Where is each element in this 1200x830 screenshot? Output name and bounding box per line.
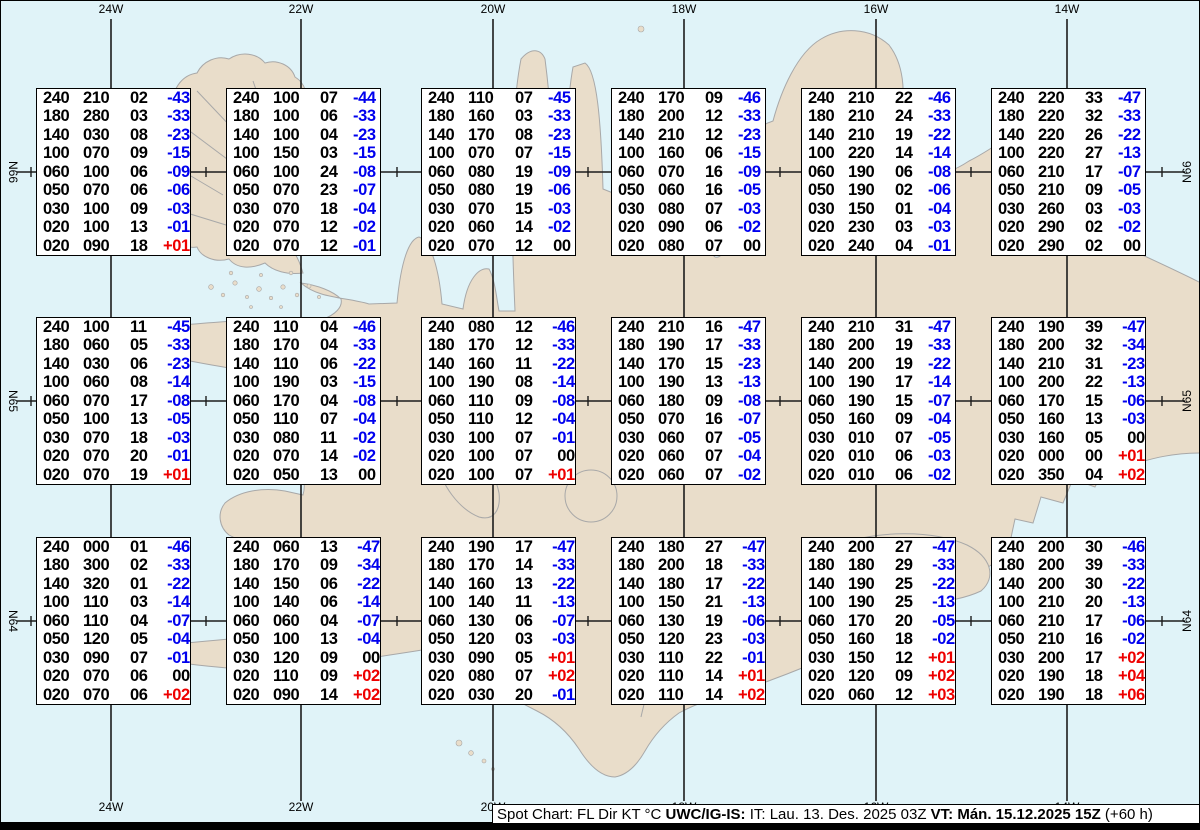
spot-row: 06021017-06 [992, 612, 1151, 630]
kt-value: 02 [895, 182, 928, 199]
dir-value: 110 [468, 393, 515, 410]
spot-row: 0202900200 [992, 237, 1147, 255]
dir-value: 190 [848, 594, 895, 611]
temp-value: -47 [1118, 319, 1145, 336]
spot-row: 18020039-33 [992, 556, 1151, 574]
fl-value: 100 [998, 374, 1038, 391]
fl-value: 050 [998, 411, 1038, 428]
fl-value: 020 [998, 219, 1038, 236]
temp-value: -07 [548, 613, 575, 630]
kt-value: 06 [130, 668, 163, 685]
fl-value: 030 [998, 201, 1038, 218]
temp-value: -22 [548, 576, 575, 593]
dir-value: 070 [83, 145, 130, 162]
kt-value: 19 [515, 182, 548, 199]
temp-value: -47 [928, 319, 951, 336]
temp-value: -33 [1118, 108, 1141, 125]
fl-value: 050 [43, 411, 83, 428]
dir-value: 190 [1038, 687, 1085, 704]
fl-value: 180 [428, 337, 468, 354]
spot-row: 05008019-06 [422, 181, 577, 199]
spot-row: 03010007-01 [422, 429, 581, 447]
temp-value: -33 [548, 108, 571, 125]
temp-value: -22 [1118, 127, 1141, 144]
dir-value: 100 [83, 219, 130, 236]
spot-row: 05010013-04 [227, 630, 386, 648]
temp-value: -33 [928, 337, 951, 354]
temp-value: -05 [928, 613, 955, 630]
kt-value: 21 [705, 594, 738, 611]
kt-value: 07 [515, 145, 548, 162]
fl-value: 180 [998, 108, 1038, 125]
fl-value: 030 [43, 650, 83, 667]
fl-value: 030 [998, 650, 1038, 667]
dir-value: 120 [468, 631, 515, 648]
temp-value: -22 [928, 356, 951, 373]
temp-value: -02 [738, 467, 761, 484]
temp-value: -33 [738, 337, 761, 354]
fl-value: 020 [998, 687, 1038, 704]
temp-value: -07 [163, 613, 190, 630]
temp-value: +02 [738, 687, 765, 704]
temp-value: -08 [353, 393, 376, 410]
spot-row: 06007017-08 [37, 392, 196, 410]
temp-value: -04 [353, 201, 376, 218]
kt-value: 22 [705, 650, 738, 667]
dir-value: 110 [658, 668, 705, 685]
kt-value: 13 [130, 411, 163, 428]
temp-value: -47 [738, 319, 761, 336]
kt-value: 25 [895, 576, 928, 593]
fl-value: 240 [808, 319, 848, 336]
temp-value: 00 [353, 650, 380, 667]
kt-value: 11 [130, 319, 163, 336]
spot-row: 24021031-47 [802, 318, 957, 336]
temp-value: -13 [738, 594, 765, 611]
kt-value: 27 [705, 539, 738, 556]
spot-row: 05021009-05 [992, 181, 1147, 199]
temp-value: -01 [163, 650, 190, 667]
fl-value: 050 [428, 631, 468, 648]
temp-value: -02 [353, 219, 376, 236]
temp-value: -22 [738, 576, 765, 593]
fl-value: 100 [998, 145, 1038, 162]
temp-value: +02 [1118, 467, 1145, 484]
fl-value: 020 [428, 238, 468, 255]
dir-value: 100 [273, 127, 320, 144]
temp-value: -44 [353, 90, 376, 107]
temp-value: -14 [163, 594, 190, 611]
temp-value: -45 [548, 90, 571, 107]
fl-value: 180 [808, 557, 848, 574]
kt-value: 13 [1085, 411, 1118, 428]
dir-value: 160 [658, 145, 705, 162]
temp-value: -33 [163, 108, 190, 125]
kt-value: 18 [705, 557, 738, 574]
spot-row: 14015006-22 [227, 575, 386, 593]
dir-value: 070 [468, 238, 515, 255]
dir-value: 200 [658, 108, 705, 125]
temp-value: +01 [548, 467, 575, 484]
fl-value: 180 [43, 557, 83, 574]
spot-row: 05012023-03 [612, 630, 771, 648]
lon-label-top: 18W [672, 3, 697, 15]
kt-value: 17 [1085, 164, 1118, 181]
temp-value: -33 [738, 557, 765, 574]
spot-row: 05011007-04 [227, 410, 382, 428]
spot-row: 24010011-45 [37, 318, 196, 336]
fl-value: 020 [808, 467, 848, 484]
fl-value: 140 [43, 576, 83, 593]
spot-row: 14016011-22 [422, 355, 581, 373]
kt-value: 19 [895, 356, 928, 373]
temp-value: -02 [928, 467, 951, 484]
kt-value: 13 [130, 219, 163, 236]
spot-row: 14019025-22 [802, 575, 961, 593]
dir-value: 100 [273, 631, 320, 648]
fl-value: 020 [808, 219, 848, 236]
spot-row: 05007016-07 [612, 410, 767, 428]
temp-value: +04 [1118, 668, 1145, 685]
dir-value: 200 [1038, 539, 1085, 556]
spot-row: 24006013-47 [227, 538, 386, 556]
spot-row: 10019013-13 [612, 373, 767, 391]
dir-value: 160 [468, 576, 515, 593]
spot-row: 0200701200 [422, 237, 577, 255]
spot-row: 24021022-46 [802, 89, 957, 107]
fl-value: 180 [428, 108, 468, 125]
kt-value: 01 [130, 576, 163, 593]
temp-value: 00 [1118, 430, 1145, 447]
dir-value: 110 [273, 668, 320, 685]
fl-value: 020 [43, 467, 83, 484]
kt-value: 07 [320, 411, 353, 428]
fl-value: 020 [808, 448, 848, 465]
dir-value: 160 [1038, 430, 1085, 447]
temp-value: -47 [738, 539, 765, 556]
spot-data-box: 24021031-4718020019-3314020019-221001901… [801, 317, 956, 485]
spot-row: 18018029-33 [802, 556, 961, 574]
legend-text-segment: Spot Chart: FL Dir KT °C [497, 807, 666, 822]
lon-label-top: 16W [864, 3, 889, 15]
temp-value: -08 [928, 164, 951, 181]
fl-value: 100 [428, 145, 468, 162]
kt-value: 05 [515, 650, 548, 667]
temp-value: -03 [928, 219, 951, 236]
fl-value: 240 [43, 539, 83, 556]
spot-row: 05019002-06 [802, 181, 957, 199]
fl-value: 030 [808, 650, 848, 667]
spot-row: 14032001-22 [37, 575, 196, 593]
kt-value: 12 [705, 108, 738, 125]
fl-value: 240 [428, 539, 468, 556]
spot-row: 06013019-06 [612, 612, 771, 630]
kt-value: 19 [130, 467, 163, 484]
dir-value: 050 [273, 467, 320, 484]
spot-row: 02029002-02 [992, 218, 1147, 236]
spot-row: 02023003-03 [802, 218, 957, 236]
fl-value: 240 [998, 539, 1038, 556]
dir-value: 070 [83, 393, 130, 410]
fl-value: 030 [43, 430, 83, 447]
dir-value: 060 [658, 182, 705, 199]
dir-value: 200 [848, 337, 895, 354]
fl-value: 020 [233, 238, 273, 255]
temp-value: -04 [928, 201, 951, 218]
kt-value: 13 [320, 467, 353, 484]
kt-value: 03 [515, 631, 548, 648]
temp-value: -33 [1118, 557, 1145, 574]
dir-value: 140 [468, 594, 515, 611]
fl-value: 240 [808, 539, 848, 556]
kt-value: 14 [515, 557, 548, 574]
temp-value: -03 [738, 631, 765, 648]
dir-value: 110 [658, 650, 705, 667]
spot-row: 05016009-04 [802, 410, 957, 428]
temp-value: -04 [928, 411, 951, 428]
temp-value: -09 [548, 164, 571, 181]
fl-value: 020 [233, 448, 273, 465]
fl-value: 030 [233, 201, 273, 218]
kt-value: 04 [320, 127, 353, 144]
temp-value: +03 [928, 687, 955, 704]
temp-value: +01 [163, 238, 190, 255]
fl-value: 020 [428, 467, 468, 484]
kt-value: 07 [895, 430, 928, 447]
dir-value: 070 [83, 467, 130, 484]
dir-value: 060 [468, 219, 515, 236]
spot-row: 10006008-14 [37, 373, 196, 391]
temp-value: -08 [738, 393, 761, 410]
kt-value: 18 [130, 238, 163, 255]
spot-row: 02000000+01 [992, 447, 1151, 465]
kt-value: 11 [515, 594, 548, 611]
dir-value: 190 [1038, 668, 1085, 685]
kt-value: 17 [895, 374, 928, 391]
dir-value: 210 [1038, 613, 1085, 630]
spot-row: 02010007+01 [422, 466, 581, 484]
spot-row: 10019008-14 [422, 373, 581, 391]
kt-value: 06 [320, 594, 353, 611]
spot-row: 02024004-01 [802, 237, 957, 255]
fl-value: 020 [808, 668, 848, 685]
spot-data-box: 24021002-4318028003-3314003008-231000700… [36, 88, 191, 256]
kt-value: 16 [705, 182, 738, 199]
kt-value: 12 [320, 238, 353, 255]
spot-data-box: 24021022-4618021024-3314021019-221002201… [801, 88, 956, 256]
fl-value: 140 [998, 576, 1038, 593]
fl-value: 180 [428, 557, 468, 574]
spot-row: 10022027-13 [992, 144, 1147, 162]
spot-row: 10019003-15 [227, 373, 382, 391]
dir-value: 090 [658, 219, 705, 236]
kt-value: 20 [895, 613, 928, 630]
spot-row: 05012003-03 [422, 630, 581, 648]
spot-row: 10015003-15 [227, 144, 382, 162]
kt-value: 09 [705, 393, 738, 410]
fl-value: 020 [618, 219, 658, 236]
fl-value: 020 [618, 238, 658, 255]
dir-value: 200 [1038, 337, 1085, 354]
spot-data-box: 24010007-4418010006-3314010004-231001500… [226, 88, 381, 256]
lat-label-right: N64 [1181, 610, 1193, 632]
fl-value: 060 [808, 164, 848, 181]
temp-value: +02 [163, 687, 190, 704]
kt-value: 05 [1085, 430, 1118, 447]
temp-value: -23 [1118, 356, 1145, 373]
dir-value: 190 [848, 164, 895, 181]
dir-value: 000 [1038, 448, 1085, 465]
kt-value: 14 [705, 668, 738, 685]
lat-label-left: N66 [7, 161, 19, 183]
fl-value: 100 [808, 594, 848, 611]
kt-value: 03 [320, 374, 353, 391]
temp-value: 00 [738, 238, 761, 255]
fl-value: 100 [808, 374, 848, 391]
kt-value: 08 [515, 374, 548, 391]
temp-value: -13 [548, 594, 575, 611]
dir-value: 180 [658, 576, 705, 593]
spot-row: 03008011-02 [227, 429, 382, 447]
fl-value: 140 [808, 576, 848, 593]
kt-value: 18 [895, 631, 928, 648]
fl-value: 140 [43, 356, 83, 373]
dir-value: 110 [273, 356, 320, 373]
temp-value: -09 [163, 164, 190, 181]
spot-row: 03007018-04 [227, 200, 382, 218]
spot-row: 10007007-15 [422, 144, 577, 162]
dir-value: 210 [83, 90, 130, 107]
dir-value: 060 [658, 430, 705, 447]
fl-value: 050 [618, 411, 658, 428]
fl-value: 240 [233, 90, 273, 107]
temp-value: -06 [548, 182, 571, 199]
fl-value: 050 [618, 631, 658, 648]
fl-value: 030 [618, 430, 658, 447]
spot-row: 02011009+02 [227, 667, 386, 685]
temp-value: -02 [1118, 631, 1145, 648]
kt-value: 23 [320, 182, 353, 199]
fl-value: 140 [998, 127, 1038, 144]
spot-row: 02007020-01 [37, 447, 196, 465]
spot-data-box: 24011004-4618017004-3314011006-221001900… [226, 317, 381, 485]
temp-value: +01 [928, 650, 955, 667]
fl-value: 140 [428, 576, 468, 593]
kt-value: 16 [705, 411, 738, 428]
temp-value: -22 [928, 576, 955, 593]
temp-value: -05 [738, 430, 761, 447]
fl-value: 140 [428, 127, 468, 144]
dir-value: 190 [848, 393, 895, 410]
temp-value: -13 [1118, 145, 1141, 162]
dir-value: 160 [1038, 411, 1085, 428]
spot-row: 02007014-02 [227, 447, 382, 465]
spot-data-box: 24000001-4618030002-3314032001-221001100… [36, 537, 191, 705]
kt-value: 01 [895, 201, 928, 218]
fl-value: 030 [998, 430, 1038, 447]
kt-value: 03 [130, 594, 163, 611]
fl-value: 050 [808, 631, 848, 648]
dir-value: 190 [468, 374, 515, 391]
dir-value: 130 [658, 613, 705, 630]
spot-row: 24020030-46 [992, 538, 1151, 556]
dir-value: 060 [83, 337, 130, 354]
spot-data-box: 24017009-4618020012-3314021012-231001600… [611, 88, 766, 256]
kt-value: 03 [895, 219, 928, 236]
kt-value: 15 [1085, 393, 1118, 410]
temp-value: -46 [548, 319, 575, 336]
dir-value: 070 [658, 164, 705, 181]
dir-value: 170 [273, 557, 320, 574]
temp-value: -05 [163, 411, 190, 428]
kt-value: 29 [895, 557, 928, 574]
temp-value: -06 [163, 182, 190, 199]
fl-value: 140 [808, 356, 848, 373]
spot-row: 24011004-46 [227, 318, 382, 336]
kt-value: 17 [705, 337, 738, 354]
dir-value: 150 [658, 594, 705, 611]
spot-row: 02012009+02 [802, 667, 961, 685]
fl-value: 240 [618, 90, 658, 107]
spot-row: 14021031-23 [992, 355, 1151, 373]
dir-value: 070 [83, 430, 130, 447]
spot-row: 10014006-14 [227, 593, 386, 611]
fl-value: 180 [808, 337, 848, 354]
spot-row: 0200800700 [612, 237, 767, 255]
dir-value: 080 [468, 668, 515, 685]
temp-value: +02 [353, 668, 380, 685]
dir-value: 080 [658, 238, 705, 255]
dir-value: 290 [1038, 219, 1085, 236]
dir-value: 070 [273, 219, 320, 236]
temp-value: -05 [738, 182, 761, 199]
kt-value: 08 [130, 127, 163, 144]
spot-row: 03008007-03 [612, 200, 767, 218]
spot-row: 03009007-01 [37, 649, 196, 667]
temp-value: -14 [928, 145, 951, 162]
dir-value: 210 [1038, 594, 1085, 611]
dir-value: 080 [658, 201, 705, 218]
spot-row: 06010006-09 [37, 163, 196, 181]
fl-value: 140 [233, 356, 273, 373]
spot-row: 03007018-03 [37, 429, 196, 447]
fl-value: 240 [233, 319, 273, 336]
kt-value: 09 [705, 90, 738, 107]
spot-row: 03015001-04 [802, 200, 957, 218]
temp-value: -01 [928, 238, 951, 255]
fl-value: 020 [233, 467, 273, 484]
temp-value: -14 [163, 374, 190, 391]
dir-value: 090 [273, 687, 320, 704]
spot-data-box: 24019017-4718017014-3314016013-221001401… [421, 537, 576, 705]
fl-value: 020 [998, 448, 1038, 465]
kt-value: 22 [1085, 374, 1118, 391]
kt-value: 19 [895, 337, 928, 354]
fl-value: 020 [233, 687, 273, 704]
spot-row: 05010013-05 [37, 410, 196, 428]
kt-value: 15 [515, 201, 548, 218]
spot-row: 18006005-33 [37, 336, 196, 354]
temp-value: -08 [548, 393, 575, 410]
spot-row: 10019017-14 [802, 373, 957, 391]
fl-value: 020 [998, 238, 1038, 255]
dir-value: 070 [83, 182, 130, 199]
dir-value: 280 [83, 108, 130, 125]
temp-value: +02 [1118, 650, 1145, 667]
spot-row: 02010013-01 [37, 218, 196, 236]
spot-row: 14011006-22 [227, 355, 382, 373]
spot-row: 06010024-08 [227, 163, 382, 181]
